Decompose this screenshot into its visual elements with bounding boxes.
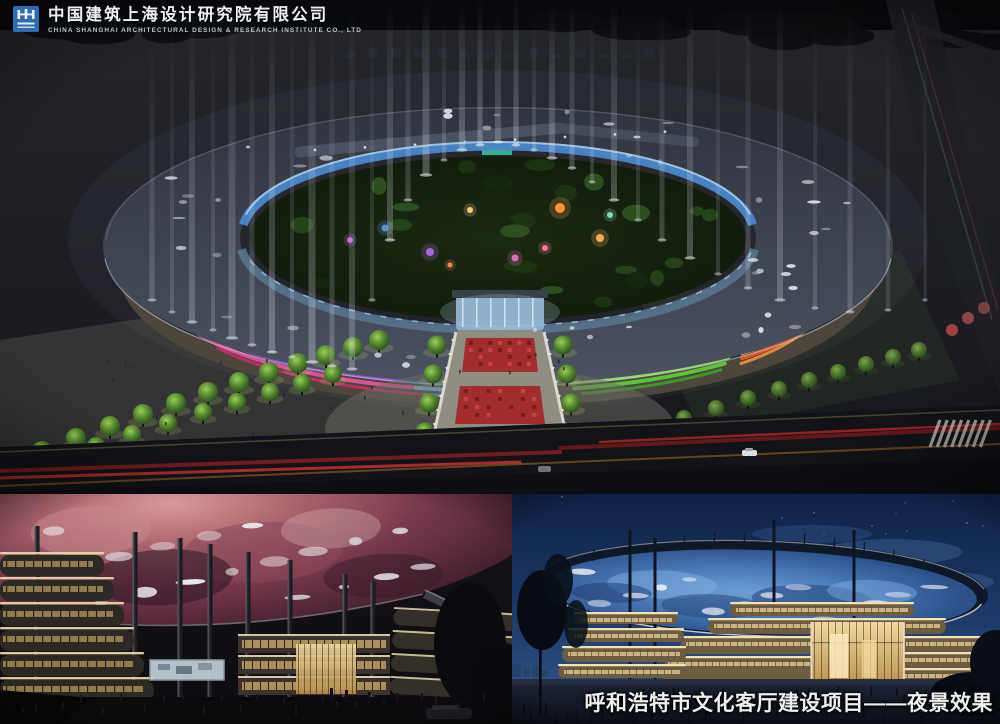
company-names: 中国建筑上海设计研究院有限公司 CHINA SHANGHAI ARCHITECT… bbox=[48, 6, 362, 34]
company-logo-icon bbox=[13, 6, 39, 32]
vignette bbox=[0, 0, 1000, 494]
nebula-canopy-scene bbox=[0, 494, 512, 724]
company-header: 中国建筑上海设计研究院有限公司 CHINA SHANGHAI ARCHITECT… bbox=[13, 6, 362, 34]
dusk-rendering: 呼和浩特市文化客厅建设项目——夜景效果 bbox=[512, 494, 1000, 724]
aerial-scene bbox=[0, 0, 1000, 494]
presentation-board: 中国建筑上海设计研究院有限公司 CHINA SHANGHAI ARCHITECT… bbox=[0, 0, 1000, 724]
aerial-night-rendering: 中国建筑上海设计研究院有限公司 CHINA SHANGHAI ARCHITECT… bbox=[0, 0, 1000, 494]
ground-night-rendering bbox=[0, 494, 512, 724]
project-caption: 呼和浩特市文化客厅建设项目——夜景效果 bbox=[585, 687, 994, 717]
vignette bbox=[0, 494, 512, 724]
company-name-zh: 中国建筑上海设计研究院有限公司 bbox=[48, 6, 362, 24]
company-name-en: CHINA SHANGHAI ARCHITECTURAL DESIGN & RE… bbox=[48, 27, 362, 34]
